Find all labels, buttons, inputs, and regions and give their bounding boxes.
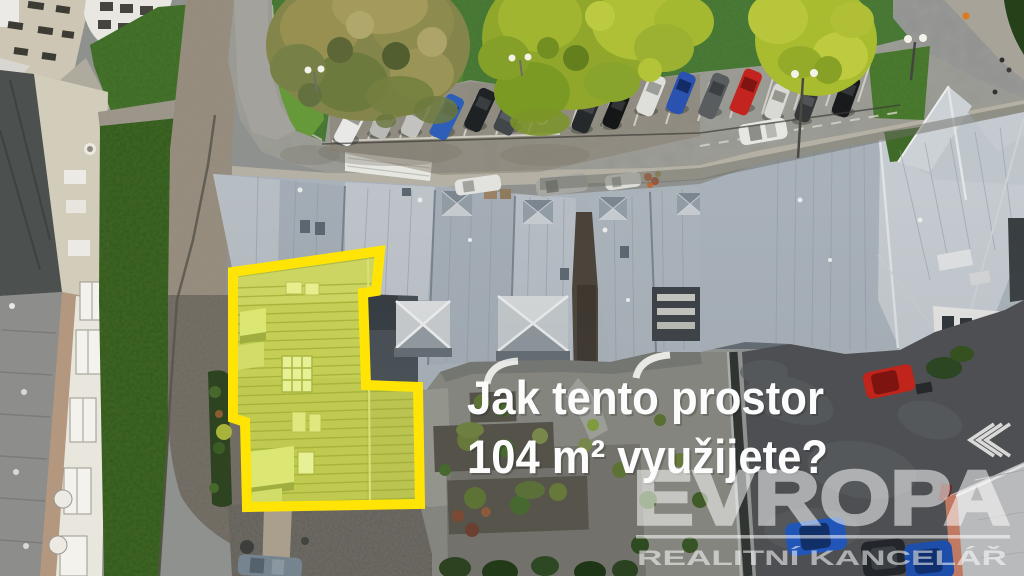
svg-text:EVROPA: EVROPA bbox=[633, 455, 1010, 540]
svg-text:Jak tento prostor: Jak tento prostor bbox=[467, 371, 824, 424]
svg-text:REALITNÍ KANCELÁŘ: REALITNÍ KANCELÁŘ bbox=[637, 546, 1007, 570]
